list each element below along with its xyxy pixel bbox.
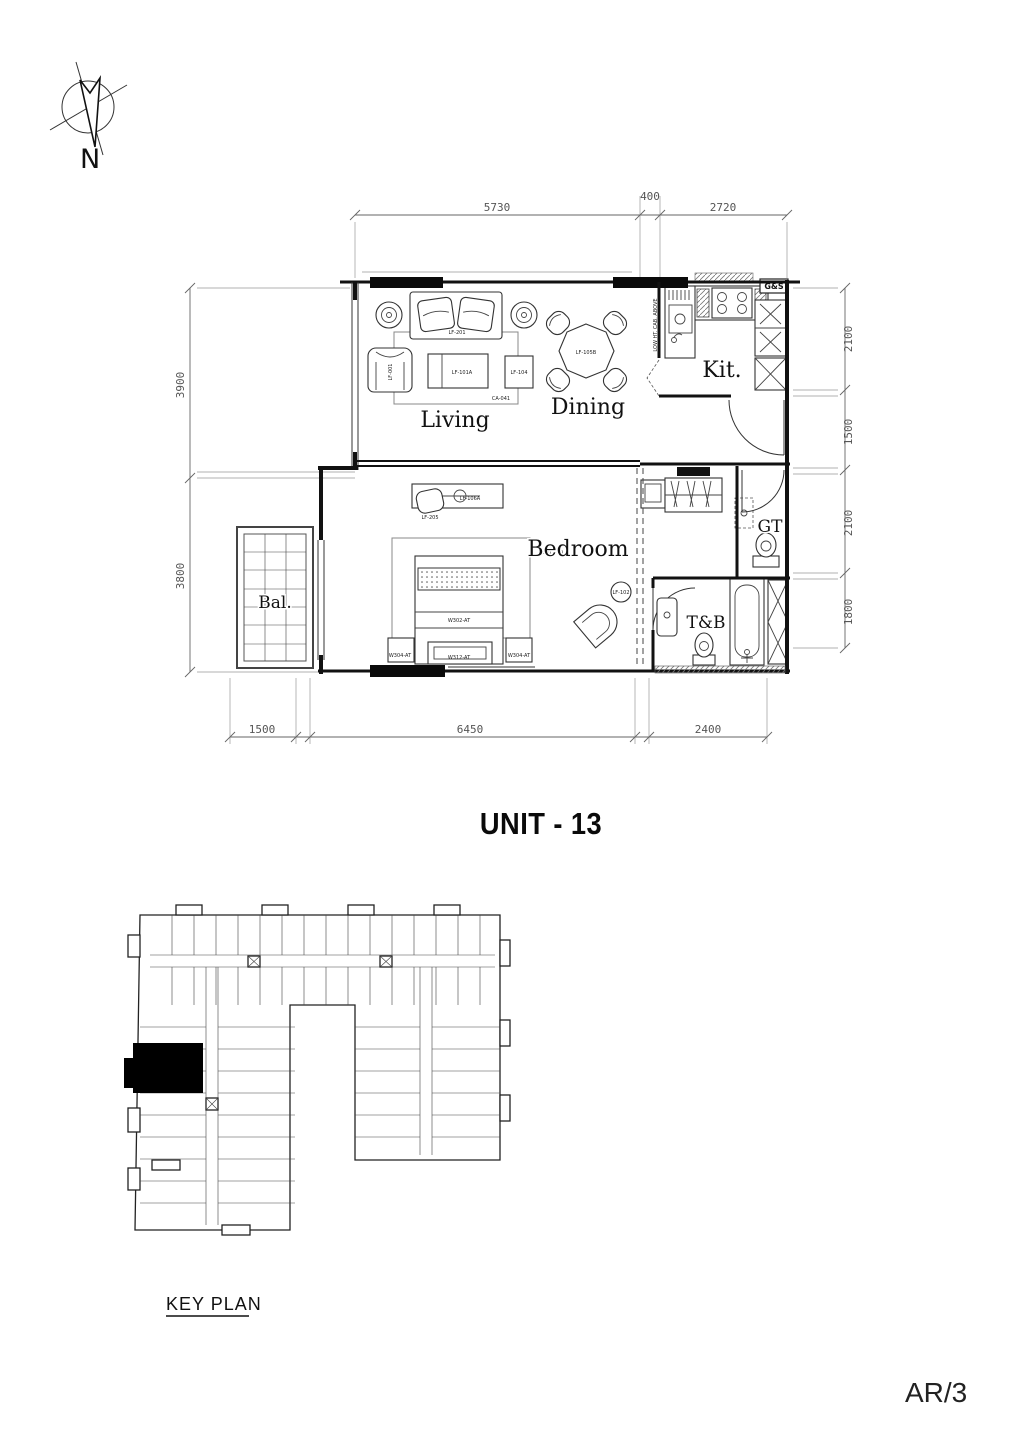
toilet-and-bath: T&B <box>653 579 788 665</box>
sheet-number: AR/3 <box>905 1377 967 1408</box>
corner-chair <box>574 598 624 648</box>
dining-area: LF-105B Dining <box>543 308 630 420</box>
balcony-label: Bal. <box>258 593 291 613</box>
dim-left-3900: 3900 <box>174 372 187 399</box>
coffee-table-tag: LF-101A <box>452 370 473 376</box>
window-tag-left: W304-AT <box>389 653 412 659</box>
key-plan: KEY PLAN <box>124 905 510 1316</box>
key-plan-highlighted-unit <box>133 1043 203 1093</box>
living-label: Living <box>420 408 489 433</box>
dim-right-1800: 1800 <box>842 599 855 626</box>
living-room: LF-201 LF-001 LF-101A LF-104 CA-041 Livi… <box>368 292 537 433</box>
north-arrow-icon: N <box>50 62 127 175</box>
dim-bottom-6450: 6450 <box>457 723 484 736</box>
dim-bottom-1500: 1500 <box>249 723 276 736</box>
dim-right-2100b: 2100 <box>842 510 855 537</box>
dimensions-bottom: 1500 6450 2400 <box>225 678 772 744</box>
dim-right-1500: 1500 <box>842 419 855 446</box>
unit-title: UNIT - 13 <box>480 807 602 841</box>
dimensions-top: 5730 400 2720 <box>350 190 792 278</box>
dining-label: Dining <box>551 395 625 420</box>
dim-top-2720: 2720 <box>710 201 737 214</box>
bathtub <box>730 579 764 665</box>
guest-toilet: GT <box>735 470 784 567</box>
side-table-tag: LF-104 <box>510 370 527 376</box>
tb-label: T&B <box>687 613 726 633</box>
dim-top-5730: 5730 <box>484 201 511 214</box>
lavatory <box>657 598 677 636</box>
window-tag-center: W312-AT <box>448 655 471 661</box>
floor-lamp-left-icon <box>376 302 402 328</box>
window-tag-right: W304-AT <box>508 653 531 659</box>
dining-table-tag: LF-105B <box>576 350 597 356</box>
kitchen-label: Kit. <box>702 358 741 383</box>
toilet-icon <box>753 533 779 567</box>
desk-chair-tag: LF-205 <box>421 515 438 521</box>
sofa-tag: LF-201 <box>448 330 465 336</box>
dim-left-3800: 3800 <box>174 563 187 590</box>
armchair-tag: LF-001 <box>388 363 394 380</box>
gt-label: GT <box>758 517 784 537</box>
foyer-closet <box>641 467 722 512</box>
dim-right-2100a: 2100 <box>842 326 855 353</box>
bedroom: RG-02(W) LF-106A LF-205 W302-AT W304-AT … <box>388 484 631 664</box>
kitchen: LOW HT. CAB. ABOVE Kit. G&S <box>653 273 788 390</box>
armchair: LF-001 <box>368 348 412 392</box>
bedroom-label: Bedroom <box>527 537 628 562</box>
dimensions-right: 2100 1500 2100 1800 <box>793 283 855 653</box>
carpet-tag: CA-041 <box>492 396 510 402</box>
corner-chair-tag: LF-102 <box>612 590 629 596</box>
north-label: N <box>80 144 100 175</box>
dim-bottom-2400: 2400 <box>695 723 722 736</box>
console-tag: LF-106A <box>460 496 481 502</box>
balcony: Bal. <box>237 527 313 668</box>
dim-top-400: 400 <box>640 190 660 203</box>
floor-lamp-right-icon <box>511 302 537 328</box>
floor-plan-drawing: N 5730 400 2720 3900 3800 <box>0 0 1017 1440</box>
bed-tag: W302-AT <box>448 618 471 624</box>
toilet-icon <box>693 633 715 665</box>
key-plan-label: KEY PLAN <box>166 1294 262 1314</box>
drawing-sheet: N 5730 400 2720 3900 3800 <box>0 0 1017 1440</box>
